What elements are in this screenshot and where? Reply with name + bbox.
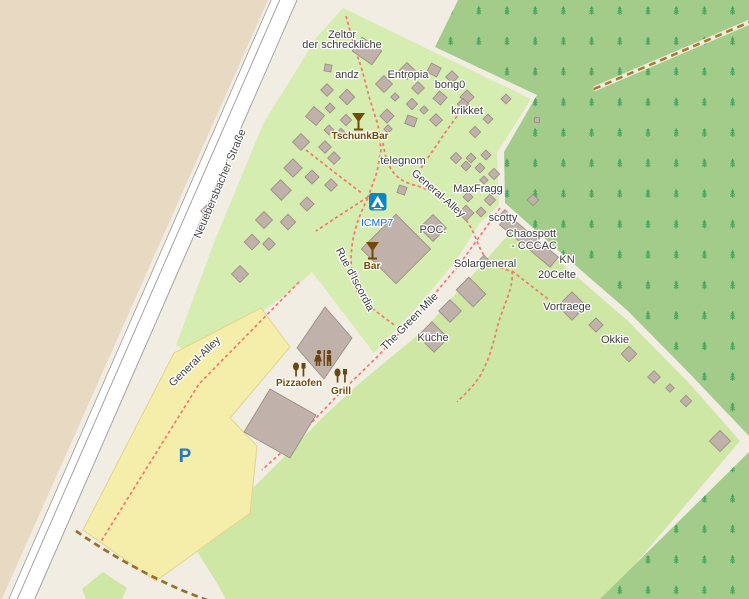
svg-text:Okkie: Okkie — [601, 334, 629, 346]
svg-text:20Celte: 20Celte — [538, 269, 576, 281]
svg-text:krikket: krikket — [451, 105, 483, 117]
svg-text:ICMP7: ICMP7 — [361, 217, 393, 229]
svg-text:Bar: Bar — [364, 261, 381, 272]
svg-text:andz: andz — [335, 69, 359, 81]
svg-text:Küche: Küche — [417, 332, 448, 344]
svg-text:- CCCAC: - CCCAC — [511, 240, 557, 252]
svg-text:POC.: POC. — [420, 224, 447, 236]
svg-text:Chaospott: Chaospott — [506, 228, 556, 240]
svg-text:Pizzaofen: Pizzaofen — [276, 378, 322, 389]
svg-text:TschunkBar: TschunkBar — [331, 131, 388, 142]
svg-text:telegnom: telegnom — [380, 155, 425, 167]
svg-text:bong0: bong0 — [435, 79, 466, 91]
svg-text:Grill: Grill — [331, 386, 351, 397]
svg-text:Entropia: Entropia — [388, 69, 430, 81]
svg-text:P: P — [179, 446, 192, 467]
svg-text:scotty: scotty — [489, 212, 518, 224]
svg-text:MaxFragg: MaxFragg — [453, 183, 503, 195]
svg-text:KN: KN — [559, 254, 574, 266]
svg-text:Solargeneral: Solargeneral — [454, 258, 516, 270]
svg-text:der schreckliche: der schreckliche — [302, 39, 381, 51]
svg-text:Vortraege: Vortraege — [543, 301, 591, 313]
